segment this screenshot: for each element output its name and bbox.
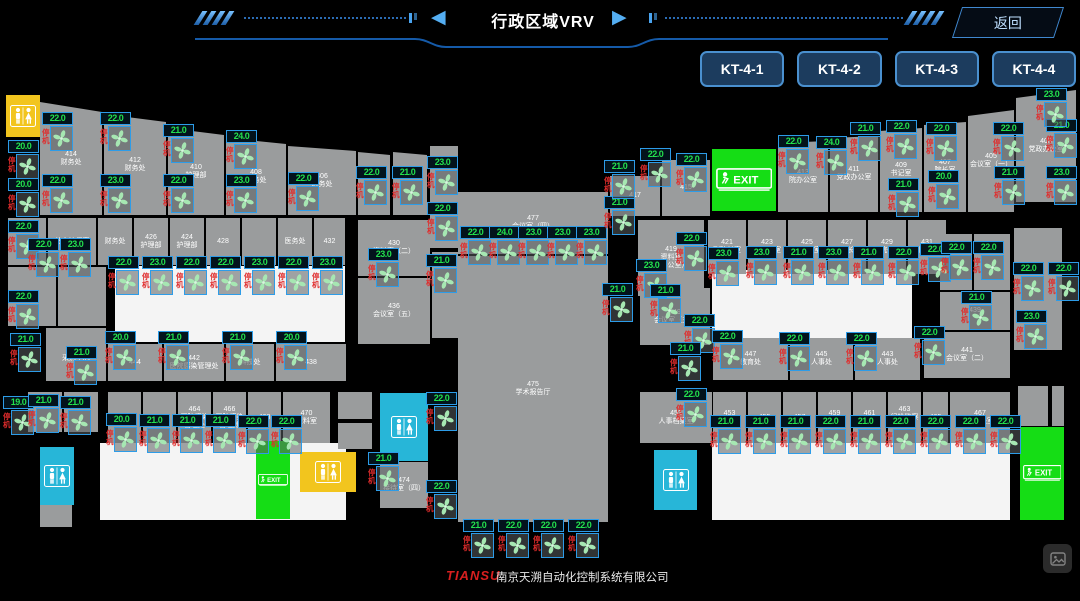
fan-temp-label: 22.0 — [42, 174, 73, 187]
fan-unit[interactable]: 22.0 停机 — [426, 480, 457, 519]
fan-unit[interactable]: 22.0 停机 — [885, 415, 916, 454]
fan-unit[interactable]: 22.0 停机 — [676, 153, 707, 192]
fan-status-label: 停机 — [636, 273, 644, 298]
fan-icon — [787, 346, 810, 371]
fan-icon — [400, 180, 423, 205]
fan-temp-label: 23.0 — [818, 246, 849, 259]
fan-unit[interactable]: 22.0 停机 — [1013, 262, 1044, 301]
restroom-block — [654, 450, 697, 510]
fan-unit[interactable]: 22.0 停机 — [973, 241, 1004, 280]
fan-temp-label: 22.0 — [356, 166, 387, 179]
fan-icon — [234, 188, 257, 213]
kt-button[interactable]: KT-4-3 — [895, 51, 979, 87]
fan-status-label: 停机 — [955, 429, 963, 454]
fan-unit[interactable]: 21.0 停机 — [205, 414, 236, 453]
fan-status-label: 停机 — [392, 180, 400, 205]
fan-icon — [612, 174, 635, 199]
fan-unit[interactable]: 22.0 停机 — [920, 415, 951, 454]
fan-status-label: 停机 — [489, 240, 497, 265]
fan-temp-label: 21.0 — [222, 331, 253, 344]
fan-unit[interactable]: 23.0 停机 — [427, 156, 458, 195]
fan-status-label: 停机 — [163, 188, 171, 213]
fan-unit[interactable]: 22.0 停机 — [8, 290, 39, 329]
fan-unit[interactable]: 22.0 停机 — [356, 166, 387, 205]
fan-status-label: 停机 — [846, 346, 854, 371]
room-label: 409 书记室 — [891, 162, 912, 178]
fan-temp-label: 22.0 — [955, 415, 986, 428]
fan-unit[interactable]: 22.0 停机 — [210, 256, 241, 295]
fan-unit[interactable]: 21.0 停机 — [745, 415, 776, 454]
fan-unit[interactable]: 20.0 停机 — [8, 140, 39, 179]
fan-unit[interactable]: 23.0 停机 — [746, 246, 777, 285]
fan-status-label: 停机 — [650, 298, 658, 323]
fan-icon — [684, 402, 707, 427]
fan-unit[interactable]: 22.0 停机 — [271, 415, 302, 454]
fan-unit[interactable]: 23.0 停机 — [1036, 88, 1067, 127]
fan-icon — [1054, 133, 1077, 158]
fan-icon — [434, 406, 457, 431]
fan-status-label: 停机 — [886, 134, 894, 159]
svg-text:EXIT: EXIT — [267, 478, 281, 484]
fan-status-label: 停机 — [426, 268, 434, 293]
room-block — [40, 505, 72, 527]
fan-unit[interactable]: 22.0 停机 — [460, 226, 491, 265]
fan-status-label: 停机 — [926, 136, 934, 161]
fan-unit[interactable]: 21.0 停机 — [392, 166, 423, 205]
fan-unit[interactable]: 20.0 停机 — [105, 331, 136, 370]
fan-icon — [998, 429, 1021, 454]
fan-temp-label: 22.0 — [163, 174, 194, 187]
fan-unit[interactable]: 21.0 停机 — [604, 196, 635, 235]
restroom-icon — [10, 105, 36, 127]
fan-temp-label: 21.0 — [745, 415, 776, 428]
fan-icon — [934, 136, 957, 161]
fan-unit[interactable]: 21.0 停机 — [602, 283, 633, 322]
fan-status-label: 停机 — [498, 533, 506, 558]
room-label: 436 会议室（五） — [373, 303, 415, 319]
fan-unit[interactable]: 23.0 停机 — [142, 256, 173, 295]
fan-icon — [936, 184, 959, 209]
fan-temp-label: 21.0 — [888, 178, 919, 191]
fan-unit[interactable]: 21.0 停机 — [426, 254, 457, 293]
fan-unit[interactable]: 21.0 停机 — [994, 166, 1025, 205]
kt-button[interactable]: KT-4-4 — [992, 51, 1076, 87]
fan-status-label: 停机 — [928, 184, 936, 209]
fan-status-label: 停机 — [66, 360, 74, 385]
fan-unit[interactable]: 21.0 停机 — [163, 124, 194, 163]
fan-icon — [246, 429, 269, 454]
room-label: 475 学术报告厅 — [516, 381, 551, 397]
fan-status-label: 停机 — [8, 234, 16, 259]
restroom-icon — [315, 461, 341, 483]
fan-unit[interactable]: 22.0 停机 — [498, 519, 529, 558]
header-dotted-line-right — [665, 17, 903, 19]
fan-status-label: 停机 — [1013, 276, 1021, 301]
fan-status-label: 停机 — [780, 429, 788, 454]
prev-area-arrow[interactable]: ◀ — [431, 6, 446, 30]
room-block — [1052, 386, 1064, 426]
fan-temp-label: 22.0 — [885, 415, 916, 428]
fan-temp-label: 22.0 — [238, 415, 269, 428]
fan-status-label: 停机 — [533, 533, 541, 558]
fan-unit[interactable]: 23.0 停机 — [100, 174, 131, 213]
fan-icon — [184, 270, 207, 295]
fan-status-label: 停机 — [576, 240, 584, 265]
fan-status-label: 停机 — [244, 270, 252, 295]
fan-unit[interactable]: 21.0 停机 — [222, 331, 253, 370]
fan-unit[interactable]: 23.0 停机 — [244, 256, 275, 295]
fan-temp-label: 23.0 — [60, 238, 91, 251]
fan-status-label: 停机 — [1036, 102, 1044, 127]
fan-unit[interactable]: 23.0 停机 — [576, 226, 607, 265]
next-area-arrow[interactable]: ▶ — [612, 6, 627, 30]
fan-temp-label: 22.0 — [460, 226, 491, 239]
fan-unit[interactable]: 21.0 停机 — [368, 452, 399, 491]
fan-unit[interactable]: 22.0 停机 — [955, 415, 986, 454]
fan-temp-label: 21.0 — [850, 122, 881, 135]
fan-unit[interactable]: 24.0 停机 — [226, 130, 257, 169]
fan-temp-label: 23.0 — [576, 226, 607, 239]
fan-unit[interactable]: 22.0 停机 — [990, 415, 1021, 454]
fan-unit[interactable]: 23.0 停机 — [1016, 310, 1047, 349]
back-button[interactable]: 返回 — [952, 7, 1064, 38]
fan-status-label: 停机 — [158, 345, 166, 370]
fan-icon — [171, 138, 194, 163]
fan-icon — [68, 252, 91, 277]
fan-icon — [791, 260, 814, 285]
screenshot-button[interactable] — [1043, 544, 1072, 573]
fan-status-label: 停机 — [547, 240, 555, 265]
fan-unit[interactable]: 22.0 停机 — [288, 172, 319, 211]
fan-temp-label: 22.0 — [914, 326, 945, 339]
fan-unit[interactable]: 24.0 停机 — [816, 136, 847, 175]
fan-unit[interactable]: 23.0 停机 — [818, 246, 849, 285]
fan-temp-label: 21.0 — [158, 331, 189, 344]
header-bar: ◀ 行政区域VRV ▶ 返回 — [0, 0, 1080, 46]
header-pause-marks-left — [409, 13, 417, 23]
fan-unit[interactable]: 22.0 停机 — [163, 174, 194, 213]
fan-unit[interactable]: 22.0 停机 — [568, 519, 599, 558]
fan-unit[interactable]: 22.0 停机 — [108, 256, 139, 295]
fan-unit[interactable]: 21.0 停机 — [139, 414, 170, 453]
fan-icon — [180, 428, 203, 453]
fan-icon — [824, 150, 847, 175]
fan-status-label: 停机 — [670, 356, 678, 381]
fan-status-label: 停机 — [941, 255, 949, 280]
fan-temp-label: 20.0 — [105, 331, 136, 344]
fan-temp-label: 22.0 — [42, 112, 73, 125]
fan-status-label: 停机 — [853, 260, 861, 285]
fan-icon — [116, 270, 139, 295]
fan-unit[interactable]: 22.0 停机 — [815, 415, 846, 454]
fan-temp-label: 21.0 — [780, 415, 811, 428]
fan-status-label: 停机 — [518, 240, 526, 265]
fan-unit[interactable]: 22.0 停机 — [640, 148, 671, 187]
picture-icon — [1050, 551, 1066, 567]
room-label: 医务处 — [285, 238, 306, 246]
fan-temp-label: 24.0 — [489, 226, 520, 239]
fan-unit[interactable]: 22.0 停机 — [100, 112, 131, 151]
fan-icon — [718, 429, 741, 454]
fan-icon — [16, 154, 39, 179]
fan-temp-label: 22.0 — [676, 232, 707, 245]
fan-unit[interactable]: 21.0 停机 — [853, 246, 884, 285]
fan-unit[interactable]: 23.0 停机 — [547, 226, 578, 265]
fan-temp-label: 22.0 — [886, 120, 917, 133]
fan-unit[interactable]: 23.0 停机 — [226, 174, 257, 213]
fan-status-label: 停机 — [3, 410, 11, 435]
fan-icon — [147, 428, 170, 453]
fan-temp-label: 20.0 — [106, 413, 137, 426]
floorplan: 414 财务处412 财务处410 护理部408 总务处406 医务处41741… — [0, 0, 1080, 601]
fan-unit[interactable]: 22.0 停机 — [427, 202, 458, 241]
fan-temp-label: 23.0 — [746, 246, 777, 259]
fan-unit[interactable]: 22.0 停机 — [176, 256, 207, 295]
fan-temp-label: 20.0 — [276, 331, 307, 344]
fan-temp-label: 21.0 — [602, 283, 633, 296]
fan-unit[interactable]: 21.0 停机 — [783, 246, 814, 285]
fan-status-label: 停机 — [888, 192, 896, 217]
fan-icon — [1054, 180, 1077, 205]
fan-icon — [36, 252, 59, 277]
fan-status-label: 停机 — [271, 429, 279, 454]
fan-status-label: 停机 — [222, 345, 230, 370]
fan-icon — [1021, 276, 1044, 301]
fan-unit[interactable]: 21.0 停机 — [888, 178, 919, 217]
fan-icon — [230, 345, 253, 370]
fan-temp-label: 22.0 — [8, 220, 39, 233]
fan-icon — [284, 345, 307, 370]
fan-unit[interactable]: 22.0 停机 — [888, 246, 919, 285]
fan-icon — [526, 240, 549, 265]
header-dotted-line-left — [244, 17, 406, 19]
fan-unit[interactable]: 23.0 停机 — [708, 247, 739, 286]
restroom-block — [300, 452, 356, 492]
fan-unit[interactable]: 22.0 停机 — [778, 135, 809, 174]
fan-icon — [826, 260, 849, 285]
fan-status-label: 停机 — [139, 428, 147, 453]
fan-icon — [963, 429, 986, 454]
fan-unit[interactable]: 21.0 停机 — [66, 346, 97, 385]
header-slashes-right — [908, 11, 940, 25]
fan-unit[interactable]: 21.0 停机 — [710, 415, 741, 454]
fan-unit[interactable]: 21.0 停机 — [850, 122, 881, 161]
fan-temp-label: 21.0 — [670, 342, 701, 355]
fan-unit[interactable]: 20.0 停机 — [276, 331, 307, 370]
room-label: 428 — [217, 238, 229, 246]
fan-unit[interactable]: 21.0 停机 — [961, 291, 992, 330]
fan-unit[interactable]: 22.0 停机 — [914, 326, 945, 365]
fan-unit[interactable]: 22.0 停机 — [426, 392, 457, 431]
fan-unit[interactable]: 22.0 停机 — [676, 232, 707, 271]
fan-icon — [576, 533, 599, 558]
fan-temp-label: 22.0 — [941, 241, 972, 254]
fan-icon — [286, 270, 309, 295]
restroom-icon — [391, 416, 417, 438]
fan-status-label: 停机 — [994, 180, 1002, 205]
restroom-block — [40, 447, 74, 505]
header-pause-marks-right — [649, 13, 657, 23]
fan-unit[interactable]: 23.0 停机 — [518, 226, 549, 265]
fan-icon — [16, 304, 39, 329]
restroom-icon — [44, 465, 70, 487]
fan-unit[interactable]: 23.0 停机 — [312, 256, 343, 295]
fan-unit[interactable]: 22.0 停机 — [278, 256, 309, 295]
fan-icon — [108, 188, 131, 213]
fan-temp-label: 22.0 — [1013, 262, 1044, 275]
fan-unit[interactable]: 22.0 停机 — [846, 332, 877, 371]
kt-button[interactable]: KT-4-2 — [797, 51, 881, 87]
fan-status-label: 停机 — [888, 260, 896, 285]
fan-temp-label: 22.0 — [1048, 262, 1079, 275]
fan-unit[interactable]: 21.0 停机 — [650, 284, 681, 323]
fan-icon — [858, 429, 881, 454]
fan-unit[interactable]: 22.0 停机 — [42, 174, 73, 213]
fan-unit[interactable]: 21.0 停机 — [670, 342, 701, 381]
fan-temp-label: 22.0 — [926, 122, 957, 135]
fan-icon — [684, 246, 707, 271]
fan-icon — [213, 428, 236, 453]
fan-icon — [786, 149, 809, 174]
fan-icon — [541, 533, 564, 558]
fan-unit[interactable]: 22.0 停机 — [238, 415, 269, 454]
fan-unit[interactable]: 20.0 停机 — [8, 178, 39, 217]
fan-unit[interactable]: 21.0 停机 — [28, 394, 59, 433]
fan-temp-label: 21.0 — [139, 414, 170, 427]
fan-unit[interactable]: 21.0 停机 — [780, 415, 811, 454]
fan-status-label: 停机 — [1046, 180, 1054, 205]
fan-status-label: 停机 — [100, 126, 108, 151]
fan-unit[interactable]: 20.0 停机 — [928, 170, 959, 209]
fan-unit[interactable]: 22.0 停机 — [712, 330, 743, 369]
fan-icon — [861, 260, 884, 285]
fan-icon — [684, 167, 707, 192]
kt-button[interactable]: KT-4-1 — [700, 51, 784, 87]
fan-status-label: 停机 — [676, 246, 684, 271]
fan-status-label: 停机 — [356, 180, 364, 205]
fan-status-label: 停机 — [815, 429, 823, 454]
fan-status-label: 停机 — [746, 260, 754, 285]
fan-unit[interactable]: 21.0 停机 — [850, 415, 881, 454]
room-label: 445 人事处 — [811, 351, 832, 367]
fan-status-label: 停机 — [640, 162, 648, 187]
fan-status-label: 停机 — [602, 297, 610, 322]
room-label: 412 财务处 — [125, 157, 146, 173]
fan-temp-label: 21.0 — [710, 415, 741, 428]
fan-unit[interactable]: 22.0 停机 — [926, 122, 957, 161]
fan-temp-label: 21.0 — [604, 160, 635, 173]
fan-status-label: 停机 — [1016, 324, 1024, 349]
fan-unit[interactable]: 20.0 停机 — [106, 413, 137, 452]
fan-status-label: 停机 — [920, 429, 928, 454]
fan-status-label: 停机 — [8, 304, 16, 329]
fan-unit[interactable]: 21.0 停机 — [604, 160, 635, 199]
fan-temp-label: 23.0 — [312, 256, 343, 269]
fan-status-label: 停机 — [993, 136, 1001, 161]
fan-icon — [720, 344, 743, 369]
fan-unit[interactable]: 22.0 停机 — [993, 122, 1024, 161]
fan-temp-label: 22.0 — [990, 415, 1021, 428]
fan-status-label: 停机 — [106, 427, 114, 452]
room-block: 436 会议室（五） — [358, 278, 430, 344]
fan-temp-label: 23.0 — [547, 226, 578, 239]
fan-temp-label: 22.0 — [684, 314, 715, 327]
page-title: 行政区域VRV — [468, 8, 618, 32]
fan-temp-label: 23.0 — [708, 247, 739, 260]
fan-temp-label: 23.0 — [142, 256, 173, 269]
room-label: 432 — [324, 238, 336, 246]
fan-temp-label: 21.0 — [368, 452, 399, 465]
fan-temp-label: 23.0 — [1046, 166, 1077, 179]
fan-status-label: 停机 — [990, 429, 998, 454]
fan-unit[interactable]: 23.0 停机 — [368, 248, 399, 287]
fan-status-label: 停机 — [426, 494, 434, 519]
fan-status-label: 停机 — [708, 261, 716, 286]
fan-unit[interactable]: 22.0 停机 — [779, 332, 810, 371]
fan-icon — [234, 144, 257, 169]
fan-temp-label: 22.0 — [8, 290, 39, 303]
fan-unit[interactable]: 24.0 停机 — [489, 226, 520, 265]
fan-unit[interactable]: 23.0 停机 — [60, 238, 91, 277]
fan-icon — [1044, 102, 1067, 127]
fan-icon — [150, 270, 173, 295]
fan-unit[interactable]: 22.0 停机 — [28, 238, 59, 277]
fan-status-label: 停机 — [604, 210, 612, 235]
fan-unit[interactable]: 22.0 停机 — [886, 120, 917, 159]
fan-status-label: 停机 — [1046, 133, 1054, 158]
fan-unit[interactable]: 22.0 停机 — [1048, 262, 1079, 301]
fan-temp-label: 22.0 — [271, 415, 302, 428]
fan-icon — [969, 305, 992, 330]
restroom-icon — [663, 469, 689, 491]
fan-status-label: 停机 — [368, 466, 376, 491]
svg-text:EXIT: EXIT — [733, 175, 758, 187]
fan-temp-label: 22.0 — [815, 415, 846, 428]
fan-temp-label: 22.0 — [210, 256, 241, 269]
fan-unit[interactable]: 21.0 停机 — [158, 331, 189, 370]
room-label: 426 护理部 — [141, 234, 162, 250]
fan-unit[interactable]: 21.0 停机 — [463, 519, 494, 558]
fan-unit[interactable]: 22.0 停机 — [941, 241, 972, 280]
fan-unit[interactable]: 21.0 停机 — [60, 396, 91, 435]
fan-status-label: 停机 — [10, 347, 18, 372]
fan-icon — [68, 410, 91, 435]
fan-temp-label: 22.0 — [973, 241, 1004, 254]
fan-icon — [922, 340, 945, 365]
fan-temp-label: 22.0 — [426, 480, 457, 493]
fan-unit[interactable]: 21.0 停机 — [172, 414, 203, 453]
room-label: 424 护理部 — [177, 234, 198, 250]
fan-icon — [471, 533, 494, 558]
fan-temp-label: 21.0 — [392, 166, 423, 179]
fan-status-label: 停机 — [28, 408, 36, 433]
fan-status-label: 停机 — [205, 428, 213, 453]
corridor-area — [712, 443, 1010, 520]
fan-unit[interactable]: 22.0 停机 — [533, 519, 564, 558]
fan-icon — [894, 134, 917, 159]
fan-unit[interactable]: 22.0 停机 — [42, 112, 73, 151]
fan-status-label: 停机 — [783, 260, 791, 285]
fan-status-label: 停机 — [238, 429, 246, 454]
fan-unit[interactable]: 21.0 停机 — [10, 333, 41, 372]
fan-icon — [320, 270, 343, 295]
fan-unit[interactable]: 22.0 停机 — [676, 388, 707, 427]
fan-temp-label: 23.0 — [226, 174, 257, 187]
exit-sign-icon: EXIT — [716, 168, 772, 192]
fan-unit[interactable]: 23.0 停机 — [1046, 166, 1077, 205]
fan-temp-label: 22.0 — [778, 135, 809, 148]
exit-sign-icon: EXIT — [258, 474, 288, 487]
